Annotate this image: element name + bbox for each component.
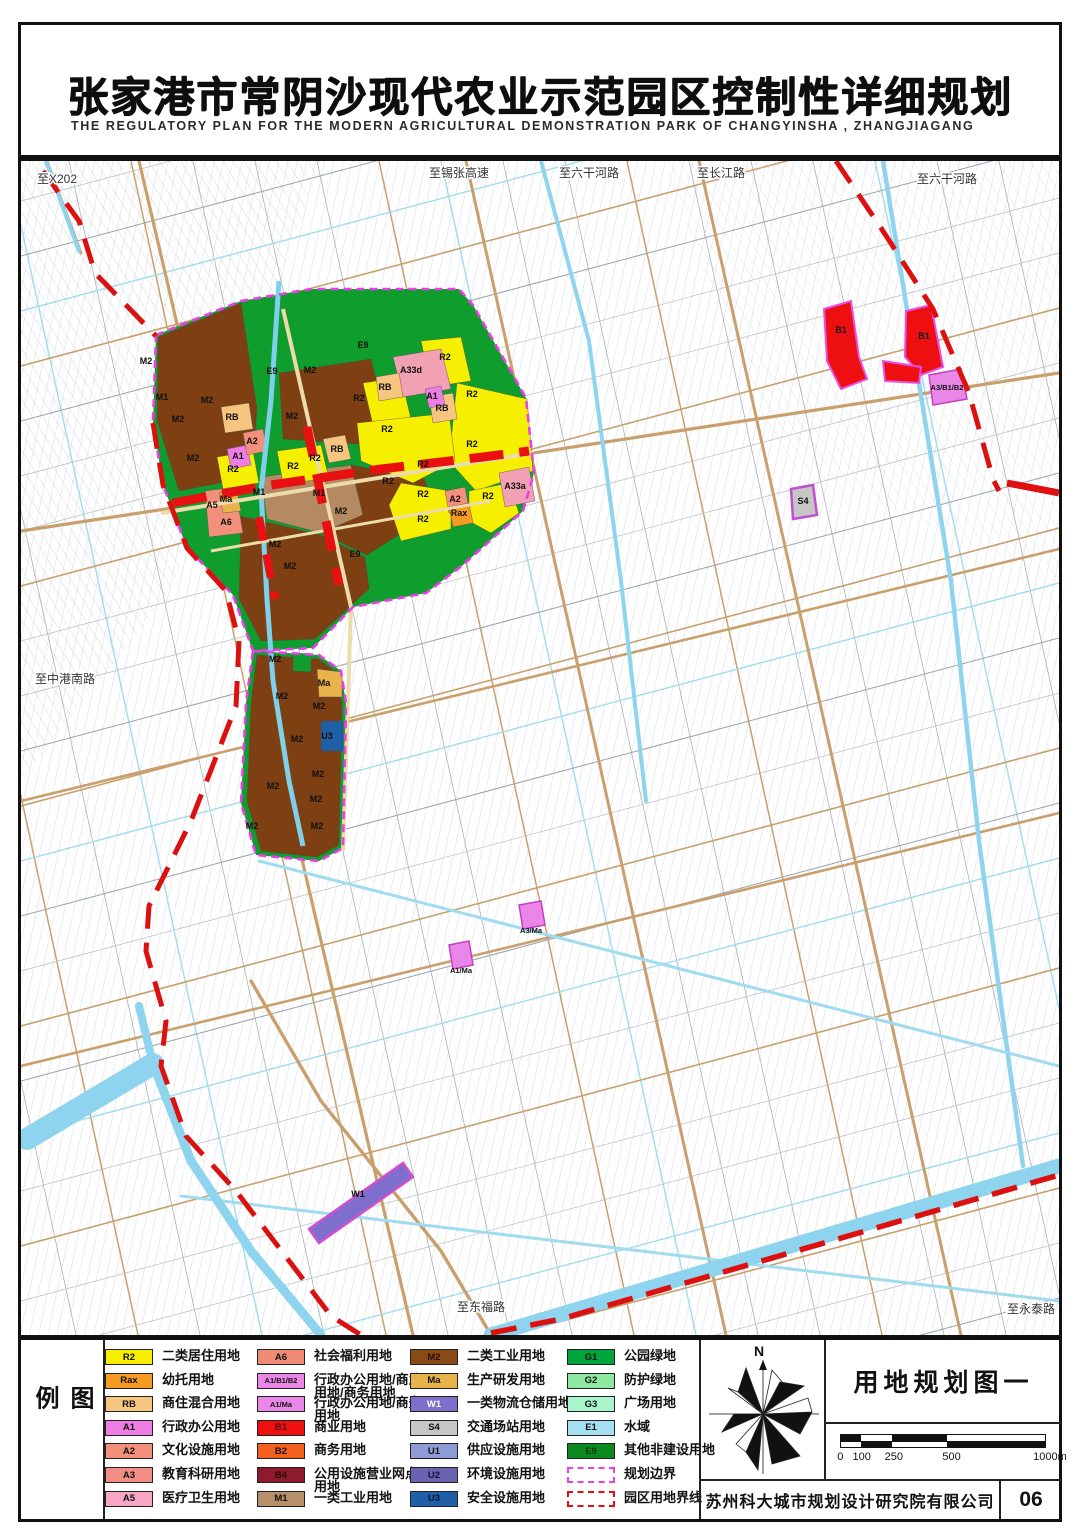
parcel-label: B1	[835, 325, 847, 335]
parcel-label: M1	[313, 488, 326, 498]
legend-swatch: U2	[410, 1467, 458, 1483]
legend-item: B2商务用地	[257, 1443, 430, 1459]
legend-label: 安全设施用地	[467, 1491, 583, 1504]
edge-road-label: 至X202	[37, 172, 77, 186]
parcel-label: A2	[449, 494, 461, 504]
parcel-label: M2	[267, 781, 280, 791]
legend-label: 交通场站用地	[467, 1420, 583, 1433]
parcel-label: A3/Ma	[520, 926, 543, 935]
legend-swatch: A3	[105, 1467, 153, 1483]
legend-item: B1商业用地	[257, 1420, 430, 1436]
legend-item: A5医疗卫生用地	[105, 1491, 278, 1507]
parcel-label: M2	[286, 411, 299, 421]
legend-item: RB商住混合用地	[105, 1396, 278, 1412]
parcel-label: RB	[436, 403, 449, 413]
compass-cell: N	[701, 1340, 826, 1479]
scale-cell: 01002505001000m	[826, 1424, 1061, 1479]
legend-swatch: B1	[257, 1420, 305, 1436]
parcel-label: RB	[379, 382, 392, 392]
parcel-label: A1/Ma	[450, 966, 473, 975]
legend-swatch: Rax	[105, 1373, 153, 1389]
parcel-label: W1	[351, 1189, 365, 1199]
scale-tick-labels: 01002505001000m	[836, 1451, 1050, 1465]
legend-swatch	[567, 1491, 615, 1507]
parcel-label: RB	[331, 444, 344, 454]
page-subtitle: THE REGULATORY PLAN FOR THE MODERN AGRIC…	[71, 119, 974, 133]
parcel-label: B1	[918, 331, 930, 341]
header: 张家港市常阴沙现代农业示范园区控制性详细规划 THE REGULATORY PL…	[21, 25, 1059, 155]
compass-rose-icon: N	[701, 1340, 826, 1479]
legend-swatch: A1/Ma	[257, 1396, 305, 1412]
parcel-label: M1	[156, 392, 169, 402]
parcel-label: R2	[466, 439, 478, 449]
parcel-label: R2	[439, 352, 451, 362]
parcel-label: M2	[276, 691, 289, 701]
legend-item: A1行政办公用地	[105, 1420, 278, 1436]
legend-swatch: A1/B1/B2	[257, 1373, 305, 1389]
page-number: 06	[1019, 1488, 1042, 1512]
legend-swatch: A6	[257, 1349, 305, 1365]
parcel-label: R2	[309, 453, 321, 463]
parcel-label: A1	[232, 451, 244, 461]
title-block: N	[699, 1340, 1059, 1519]
parcel-label: R2	[417, 489, 429, 499]
legend-item: Rax幼托用地	[105, 1373, 278, 1389]
parcel-label: A3/B1/B2	[931, 383, 964, 392]
scale-tick: 100	[852, 1451, 870, 1463]
legend-item: A2文化设施用地	[105, 1443, 278, 1459]
titleblock-bottom-row: 苏州科大城市规划设计研究院有限公司 06	[701, 1479, 1061, 1519]
legend-swatch: W1	[410, 1396, 458, 1412]
legend-swatch: Ma	[410, 1373, 458, 1389]
parcel-label: A33a	[504, 481, 527, 491]
land-parcel[interactable]	[519, 901, 545, 929]
legend-section-label: 图例	[27, 1385, 97, 1475]
edge-road-label: 至东福路	[457, 1299, 505, 1314]
parcel-label: M2	[201, 395, 214, 405]
parcel-label: R2	[227, 464, 239, 474]
parcel-label: R2	[466, 389, 478, 399]
edge-road-label: 至锡张高速	[429, 165, 489, 180]
parcel-label: A6	[220, 517, 232, 527]
legend-label: 一类物流仓储用地	[467, 1396, 583, 1409]
legend-and-titleblock: 图例 R2二类居住用地Rax幼托用地RB商住混合用地A1行政办公用地A2文化设施…	[21, 1340, 1059, 1519]
parcel-label: M2	[187, 453, 200, 463]
legend-swatch: U3	[410, 1491, 458, 1507]
parcel-label: A5	[206, 500, 218, 510]
legend-swatch: B4	[257, 1467, 305, 1483]
legend-swatch: G3	[567, 1396, 615, 1412]
map-title: 用地规划图一	[853, 1363, 1033, 1399]
sheet-frame: 张家港市常阴沙现代农业示范园区控制性详细规划 THE REGULATORY PL…	[18, 22, 1062, 1522]
parcel-label: M2	[140, 356, 153, 366]
scale-tick: 500	[942, 1451, 960, 1463]
map-title-cell: 用地规划图一	[826, 1340, 1061, 1424]
legend-item: U3安全设施用地	[410, 1491, 583, 1507]
legend-section: 图例	[21, 1340, 105, 1519]
edge-road-label: 至长江路	[697, 165, 745, 180]
parcel-label: M2	[304, 365, 317, 375]
page-number-cell: 06	[1001, 1481, 1061, 1519]
company-cell: 苏州科大城市规划设计研究院有限公司	[701, 1481, 1001, 1519]
legend-swatch: G2	[567, 1373, 615, 1389]
parcel-label: M2	[312, 769, 325, 779]
parcel-label: M2	[246, 821, 259, 831]
parcel-label: M2	[172, 414, 185, 424]
legend-item: M2二类工业用地	[410, 1349, 583, 1365]
parcel-label: M2	[335, 506, 348, 516]
parcel-label: RB	[226, 412, 239, 422]
legend-label: 二类工业用地	[467, 1349, 583, 1362]
legend-swatch	[567, 1467, 615, 1483]
parcel-label: M2	[311, 821, 324, 831]
parcel-label: M2	[313, 701, 326, 711]
parcel-label: R2	[417, 459, 429, 469]
parcel-label: R2	[382, 476, 394, 486]
legend-item: S4交通场站用地	[410, 1420, 583, 1436]
parcel-label: U3	[321, 731, 333, 741]
parcel-label: R2	[381, 424, 393, 434]
parcel-label: E9	[266, 366, 277, 376]
parcel-label: M2	[310, 794, 323, 804]
land-parcel[interactable]	[449, 941, 473, 969]
edge-road-label: 至中港南路	[35, 671, 95, 686]
scale-tick: 0	[837, 1451, 843, 1463]
parcel-label: R2	[482, 491, 494, 501]
legend-swatch: A2	[105, 1443, 153, 1459]
scale-tick: 250	[885, 1451, 903, 1463]
legend-label: 生产研发用地	[467, 1373, 583, 1386]
parcel-label: M2	[269, 539, 282, 549]
edge-road-label: 至永泰路	[1007, 1301, 1055, 1316]
edge-road-label: 至六干河路	[559, 165, 619, 180]
planning-sheet: 张家港市常阴沙现代农业示范园区控制性详细规划 THE REGULATORY PL…	[0, 0, 1080, 1530]
legend-swatch: R2	[105, 1349, 153, 1365]
legend-label: 环境设施用地	[467, 1467, 583, 1480]
legend-item: A6社会福利用地	[257, 1349, 430, 1365]
company-name: 苏州科大城市规划设计研究院有限公司	[705, 1488, 994, 1512]
legend-item: A3教育科研用地	[105, 1467, 278, 1483]
edge-road-label: 至六干河路	[917, 171, 977, 186]
parcel-label: M2	[284, 561, 297, 571]
parcel-label: E9	[349, 549, 360, 559]
legend-item: M1一类工业用地	[257, 1491, 430, 1507]
legend-item: R2二类居住用地	[105, 1349, 278, 1365]
parcel-label: R2	[353, 393, 365, 403]
legend-swatch: S4	[410, 1420, 458, 1436]
parcel-label: E9	[357, 340, 368, 350]
parcel-label: S4	[797, 496, 808, 506]
scale-bar	[840, 1434, 1046, 1448]
legend-swatch: RB	[105, 1396, 153, 1412]
legend-swatch: A1	[105, 1420, 153, 1436]
legend-swatch: G1	[567, 1349, 615, 1365]
legend-swatch: E1	[567, 1420, 615, 1436]
legend-swatch: E9	[567, 1443, 615, 1459]
legend-swatch: M1	[257, 1491, 305, 1507]
parcel-label: Ma	[220, 494, 233, 504]
legend-swatch: A5	[105, 1491, 153, 1507]
parcel-label: M1	[253, 487, 266, 497]
page-title: 张家港市常阴沙现代农业示范园区控制性详细规划	[67, 63, 1013, 123]
legend-grid: R2二类居住用地Rax幼托用地RB商住混合用地A1行政办公用地A2文化设施用地A…	[105, 1340, 699, 1519]
parcel-label: R2	[287, 461, 299, 471]
legend-item: U2环境设施用地	[410, 1467, 583, 1483]
legend-item: U1供应设施用地	[410, 1443, 583, 1459]
parcel-label: R2	[417, 514, 429, 524]
parcel-label: A33d	[400, 365, 422, 375]
land-parcel[interactable]	[293, 653, 311, 672]
parcel-label: M2	[269, 654, 282, 664]
legend-item: W1一类物流仓储用地	[410, 1396, 583, 1412]
parcel-label: A2	[246, 436, 258, 446]
legend-swatch: B2	[257, 1443, 305, 1459]
land-use-map[interactable]: M2M1M2M2M2E9E9M2M2R2RBA33dR2A1RBR2R2R2R2…	[21, 161, 1059, 1335]
scale-tick: 1000m	[1033, 1451, 1067, 1463]
legend-label: 供应设施用地	[467, 1443, 583, 1456]
legend-swatch: M2	[410, 1349, 458, 1365]
parcel-label: Rax	[451, 508, 468, 518]
legend-item: Ma生产研发用地	[410, 1373, 583, 1389]
parcel-label: A1	[426, 391, 438, 401]
north-label: N	[754, 1343, 764, 1359]
parcel-label: M2	[291, 734, 304, 744]
legend-swatch: U1	[410, 1443, 458, 1459]
map-svg[interactable]: M2M1M2M2M2E9E9M2M2R2RBA33dR2A1RBR2R2R2R2…	[21, 161, 1059, 1335]
parcel-label: Ma	[318, 678, 331, 688]
